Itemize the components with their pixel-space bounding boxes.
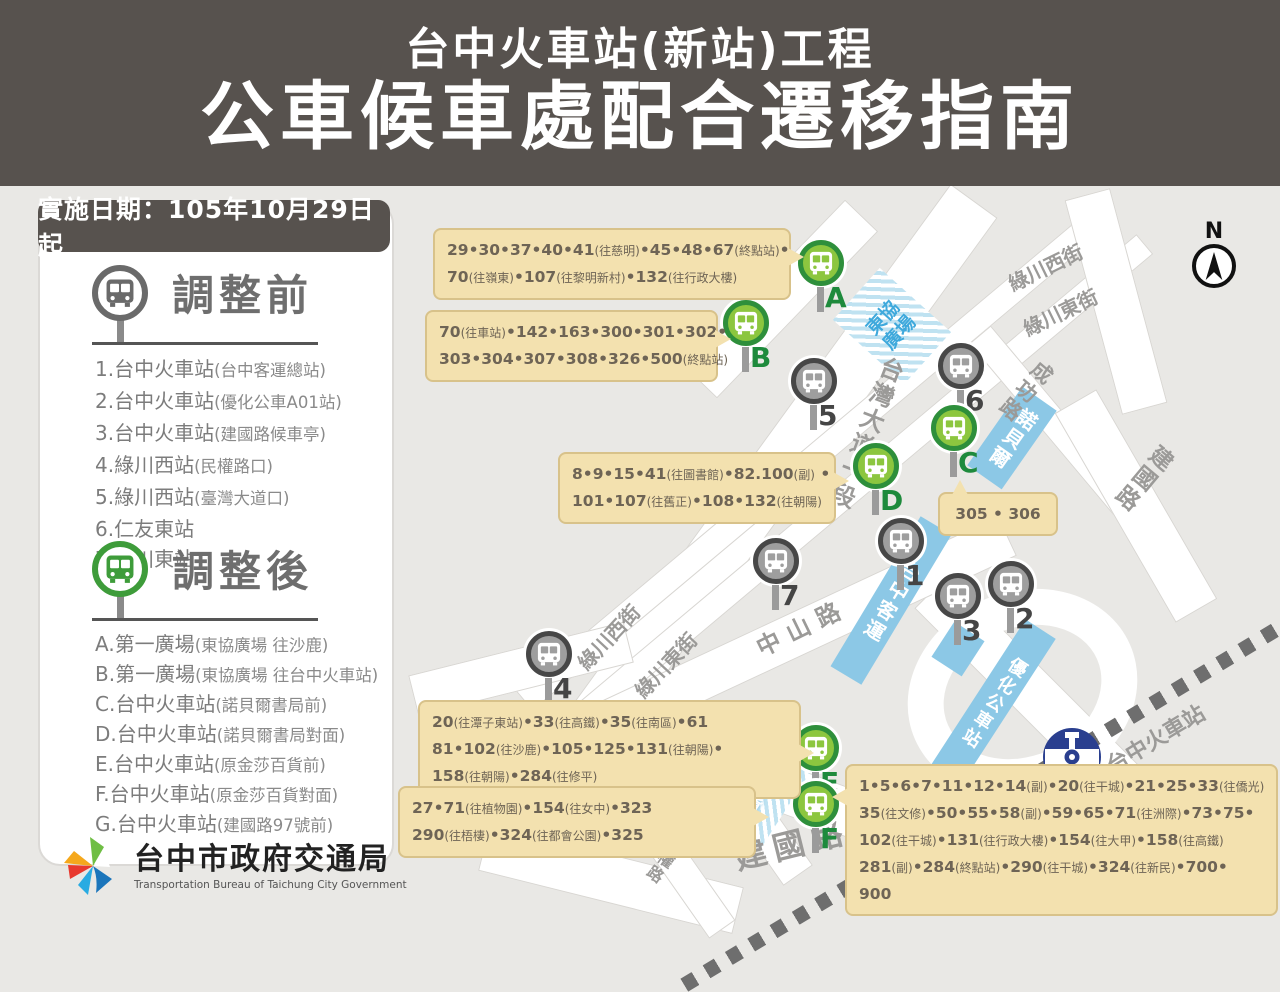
bus-stop-a: A bbox=[798, 240, 852, 320]
agency-name-zh: 台中市政府交通局 bbox=[134, 843, 407, 877]
before-section-head: 調整前 bbox=[92, 262, 313, 323]
after-stop-list: A.第一廣場(東協廣場 往沙鹿)B.第一廣場(東協廣場 往台中火車站)C.台中火… bbox=[95, 630, 378, 840]
compass: N bbox=[1188, 222, 1240, 288]
callout-stop-c: 305 • 306 bbox=[938, 492, 1058, 536]
after-section-title: 調整後 bbox=[172, 538, 313, 599]
title-line1: 台中火車站(新站)工程 bbox=[405, 26, 874, 74]
callout-stop-f: 1•5•6•7•11•12•14(副)•20(往干城)•21•25•33(往僑光… bbox=[845, 764, 1278, 916]
after-section-head: 調整後 bbox=[92, 538, 313, 599]
agency-logo-icon bbox=[60, 833, 126, 899]
bus-stop-green-icon bbox=[92, 541, 148, 597]
compass-icon bbox=[1192, 244, 1236, 288]
callout-stop-e: 20(往潭子東站)•33(往高鐵)•35(往南區)•6181•102(往沙鹿)•… bbox=[418, 700, 801, 799]
page-title: 公車候車處配合遷移指南 bbox=[200, 75, 1080, 160]
header: 台中火車站(新站)工程 公車候車處配合遷移指南 bbox=[0, 0, 1280, 186]
compass-n-label: N bbox=[1188, 222, 1240, 242]
bus-stop-d: D bbox=[853, 443, 907, 523]
bus-stop-3: 3 bbox=[935, 573, 989, 653]
bus-stop-gray-icon bbox=[92, 265, 148, 321]
bus-stop-1: 1 bbox=[878, 518, 932, 598]
before-rule bbox=[92, 342, 318, 345]
bus-stop-b: B bbox=[723, 300, 777, 380]
agency-logo: 台中市政府交通局 Transportation Bureau of Taichu… bbox=[60, 833, 407, 899]
callout-stop-g: 27•71(往植物園)•154(往女中)•323290(往梧棲)•324(往都會… bbox=[398, 786, 756, 858]
callout-stop-b: 70(往車站)•142•163•300•301•302•303•304•307•… bbox=[425, 310, 718, 382]
date-badge: 實施日期：105年10月29日起 bbox=[38, 200, 390, 252]
bus-stop-c: C bbox=[931, 405, 985, 485]
bus-stop-2: 2 bbox=[988, 561, 1042, 641]
dongxie-plaza-label: 東協廣場 bbox=[861, 295, 923, 357]
bus-stop-4: 4 bbox=[526, 631, 580, 711]
callout-stop-a: 29•30•37•40•41(往慈明)•45•48•67(終點站)•70(往嶺東… bbox=[433, 228, 791, 300]
bus-stop-7: 7 bbox=[753, 538, 807, 618]
bus-stop-5: 5 bbox=[791, 358, 845, 438]
before-section-title: 調整前 bbox=[172, 262, 313, 323]
poster: 東協廣場 諾貝爾 原 金莎 百貨 台中客運 優化公車站 台灣大道一段 綠川西街 … bbox=[0, 0, 1280, 910]
callout-stop-d: 8•9•15•41(往圖書館)•82.100(副) •101•107(往舊正)•… bbox=[558, 452, 836, 524]
agency-name-en: Transportation Bureau of Taichung City G… bbox=[134, 879, 407, 891]
after-rule bbox=[92, 618, 318, 621]
